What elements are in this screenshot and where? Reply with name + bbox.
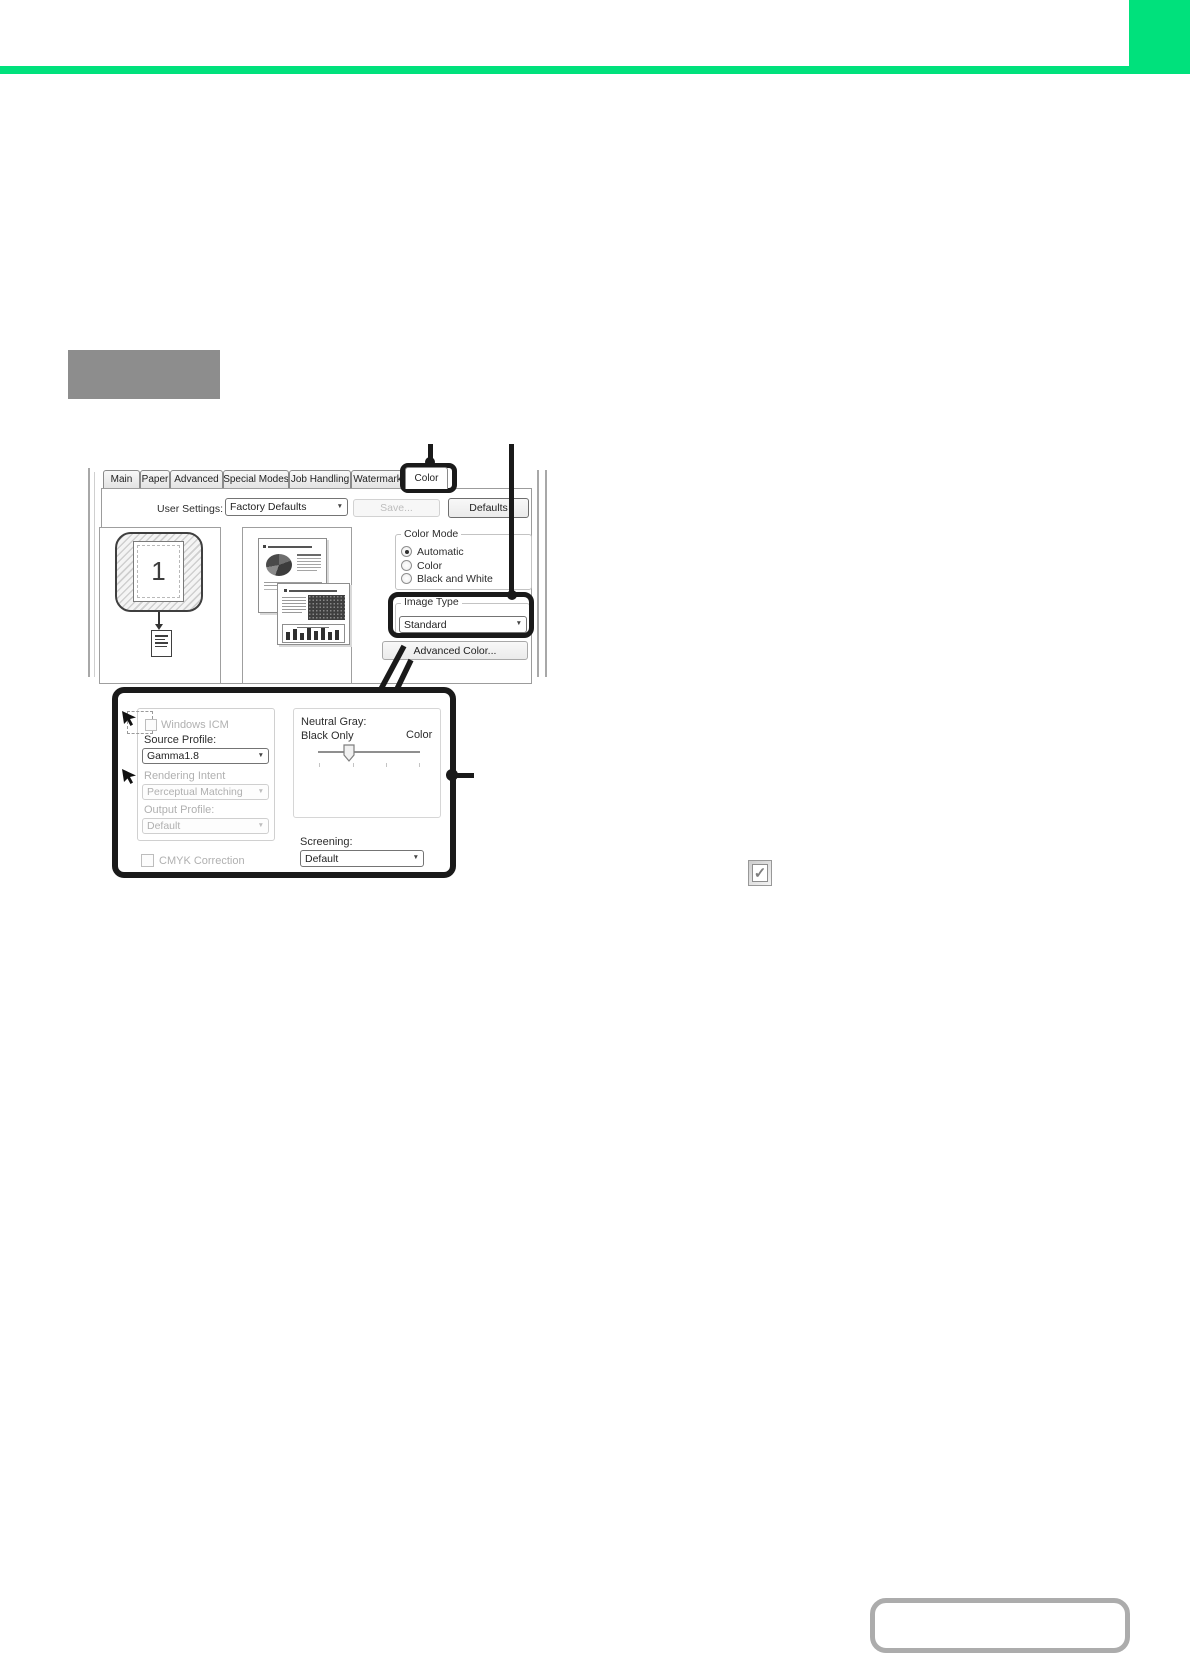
defaults-button-label: Defaults <box>469 502 508 514</box>
screening-value: Default <box>305 853 338 865</box>
manual-page: Main Paper Advanced Special Modes Job Ha… <box>0 0 1190 1656</box>
preview-sheet: 1 <box>133 541 184 602</box>
neutral-gray-left-label: Black Only <box>301 730 354 742</box>
image-type-callout-dot <box>507 590 517 600</box>
chevron-down-icon: ▼ <box>413 855 419 862</box>
slider-tick <box>419 763 420 767</box>
neutral-gray-title: Neutral Gray: <box>301 716 366 728</box>
window-right-border <box>545 470 547 677</box>
save-button[interactable]: Save... <box>353 499 440 517</box>
preview-page-number: 1 <box>134 542 183 601</box>
checked-checkbox-icon: ✓ <box>748 860 772 886</box>
radio-black-and-white[interactable] <box>401 573 412 584</box>
radio-automatic[interactable] <box>401 546 412 557</box>
tab-color-label: Color <box>415 473 439 484</box>
window-left-border <box>88 468 90 677</box>
windows-icm-checkbox[interactable] <box>145 719 157 731</box>
radio-automatic-label: Automatic <box>417 546 464 558</box>
output-arrow-line <box>158 612 160 624</box>
screening-label: Screening: <box>300 836 353 848</box>
window-right-border-inner <box>537 470 539 677</box>
rendering-intent-value: Perceptual Matching <box>147 786 243 798</box>
tab-main[interactable]: Main <box>103 470 140 488</box>
tab-color[interactable]: Color <box>405 467 448 489</box>
tab-watermark[interactable]: Watermark <box>351 470 404 488</box>
tab-special-modes[interactable]: Special Modes <box>223 470 289 488</box>
chevron-down-icon: ▼ <box>258 789 264 796</box>
radio-color[interactable] <box>401 560 412 571</box>
pointer-cursor-icon <box>121 766 138 786</box>
save-button-label: Save... <box>380 502 413 514</box>
tab-main-label: Main <box>111 474 133 485</box>
output-profile-value: Default <box>147 820 180 832</box>
check-mark-glyph: ✓ <box>754 864 767 882</box>
tab-special-modes-label: Special Modes <box>223 474 289 485</box>
tab-paper-label: Paper <box>142 474 169 485</box>
user-settings-label: User Settings: <box>150 503 223 515</box>
radio-black-and-white-label: Black and White <box>417 573 493 585</box>
neutral-gray-right-label: Color <box>406 729 432 741</box>
document-thumbnail-2 <box>277 583 350 645</box>
output-profile-label: Output Profile: <box>144 804 214 816</box>
source-profile-select[interactable]: Gamma1.8 ▼ <box>142 748 269 764</box>
neutral-gray-slider-thumb[interactable] <box>343 744 355 763</box>
tab-job-handling-label: Job Handling <box>291 474 349 485</box>
slider-tick <box>353 763 354 767</box>
rendering-intent-label: Rendering Intent <box>144 770 225 782</box>
windows-icm-label: Windows ICM <box>161 719 229 731</box>
color-mode-title: Color Mode <box>401 528 461 540</box>
window-left-border-inner <box>94 472 95 677</box>
slider-tick <box>319 763 320 767</box>
radio-color-label: Color <box>417 560 442 572</box>
chevron-down-icon: ▼ <box>258 823 264 830</box>
chevron-down-icon: ▼ <box>337 504 343 511</box>
source-profile-value: Gamma1.8 <box>147 750 199 762</box>
top-right-green-block <box>1129 0 1190 74</box>
source-profile-label: Source Profile: <box>144 734 216 746</box>
output-profile-select[interactable]: Default ▼ <box>142 818 269 834</box>
neutral-gray-slider-track[interactable] <box>318 751 420 753</box>
defaults-button[interactable]: Defaults <box>448 498 529 518</box>
tab-job-handling[interactable]: Job Handling <box>289 470 351 488</box>
tab-advanced-label: Advanced <box>174 474 218 485</box>
tab-watermark-label: Watermark <box>353 474 402 485</box>
cmyk-correction-label: CMYK Correction <box>159 855 245 867</box>
zoom-callout-tail <box>374 640 420 692</box>
section-heading-placeholder <box>68 350 220 399</box>
top-green-bar <box>0 66 1190 74</box>
user-settings-value: Factory Defaults <box>230 501 306 513</box>
chevron-down-icon: ▼ <box>258 753 264 760</box>
user-settings-select[interactable]: Factory Defaults ▼ <box>225 498 348 516</box>
advanced-color-button-label: Advanced Color... <box>414 645 497 657</box>
slider-tick <box>386 763 387 767</box>
image-type-callout-line <box>509 444 514 594</box>
pointer-cursor-icon <box>121 708 138 728</box>
cmyk-correction-checkbox[interactable] <box>141 854 154 867</box>
tab-advanced[interactable]: Advanced <box>170 470 223 488</box>
output-document-icon <box>151 630 172 657</box>
rendering-intent-select[interactable]: Perceptual Matching ▼ <box>142 784 269 800</box>
screening-select[interactable]: Default ▼ <box>300 850 424 867</box>
page-reference-box <box>870 1598 1130 1653</box>
tab-paper[interactable]: Paper <box>140 470 170 488</box>
panel-connector-dot <box>446 769 458 781</box>
